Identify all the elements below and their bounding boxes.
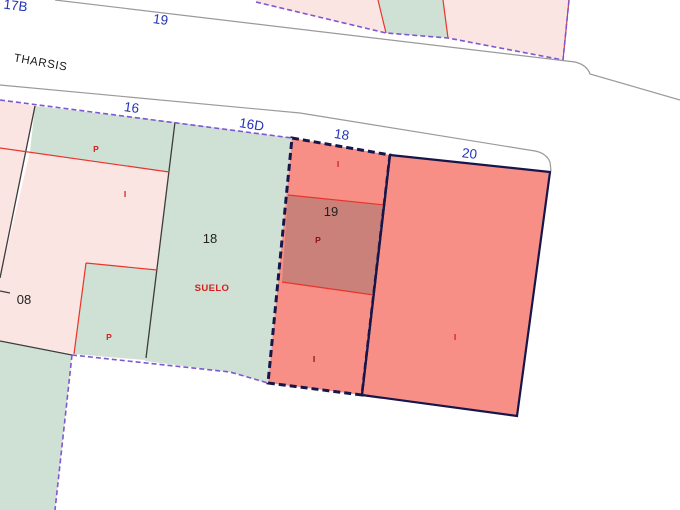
street-number-20: 20 bbox=[461, 145, 478, 162]
construction-label-p-top: P bbox=[93, 144, 99, 154]
parcel-topblock-green[interactable] bbox=[378, 0, 448, 38]
street-number-16: 16 bbox=[123, 99, 140, 116]
parcel-label-18: 18 bbox=[203, 231, 217, 246]
parcel-label-19: 19 bbox=[324, 204, 338, 219]
construction-label-p-lower: P bbox=[106, 332, 112, 342]
street-number-18: 18 bbox=[333, 126, 350, 143]
construction-label-suelo: SUELO bbox=[195, 283, 230, 294]
cadastral-map-viewport[interactable]: 17B 19 THARSIS 16 16D 18 20 08 18 19 P I… bbox=[0, 0, 680, 510]
cadastral-map[interactable]: 17B 19 THARSIS 16 16D 18 20 08 18 19 P I… bbox=[0, 0, 680, 510]
construction-label-p-sel-mid: P bbox=[315, 235, 321, 245]
parcel-left-lower-green[interactable] bbox=[74, 263, 157, 360]
construction-label-i-p20: I bbox=[454, 332, 456, 342]
construction-label-i-sel-top: I bbox=[337, 159, 339, 169]
street-number-19-top: 19 bbox=[152, 11, 169, 28]
parcel-label-08: 08 bbox=[17, 292, 31, 307]
parcel-20[interactable] bbox=[362, 155, 550, 416]
construction-label-i-left: I bbox=[124, 189, 126, 199]
construction-label-i-sel-bottom: I bbox=[313, 354, 315, 364]
